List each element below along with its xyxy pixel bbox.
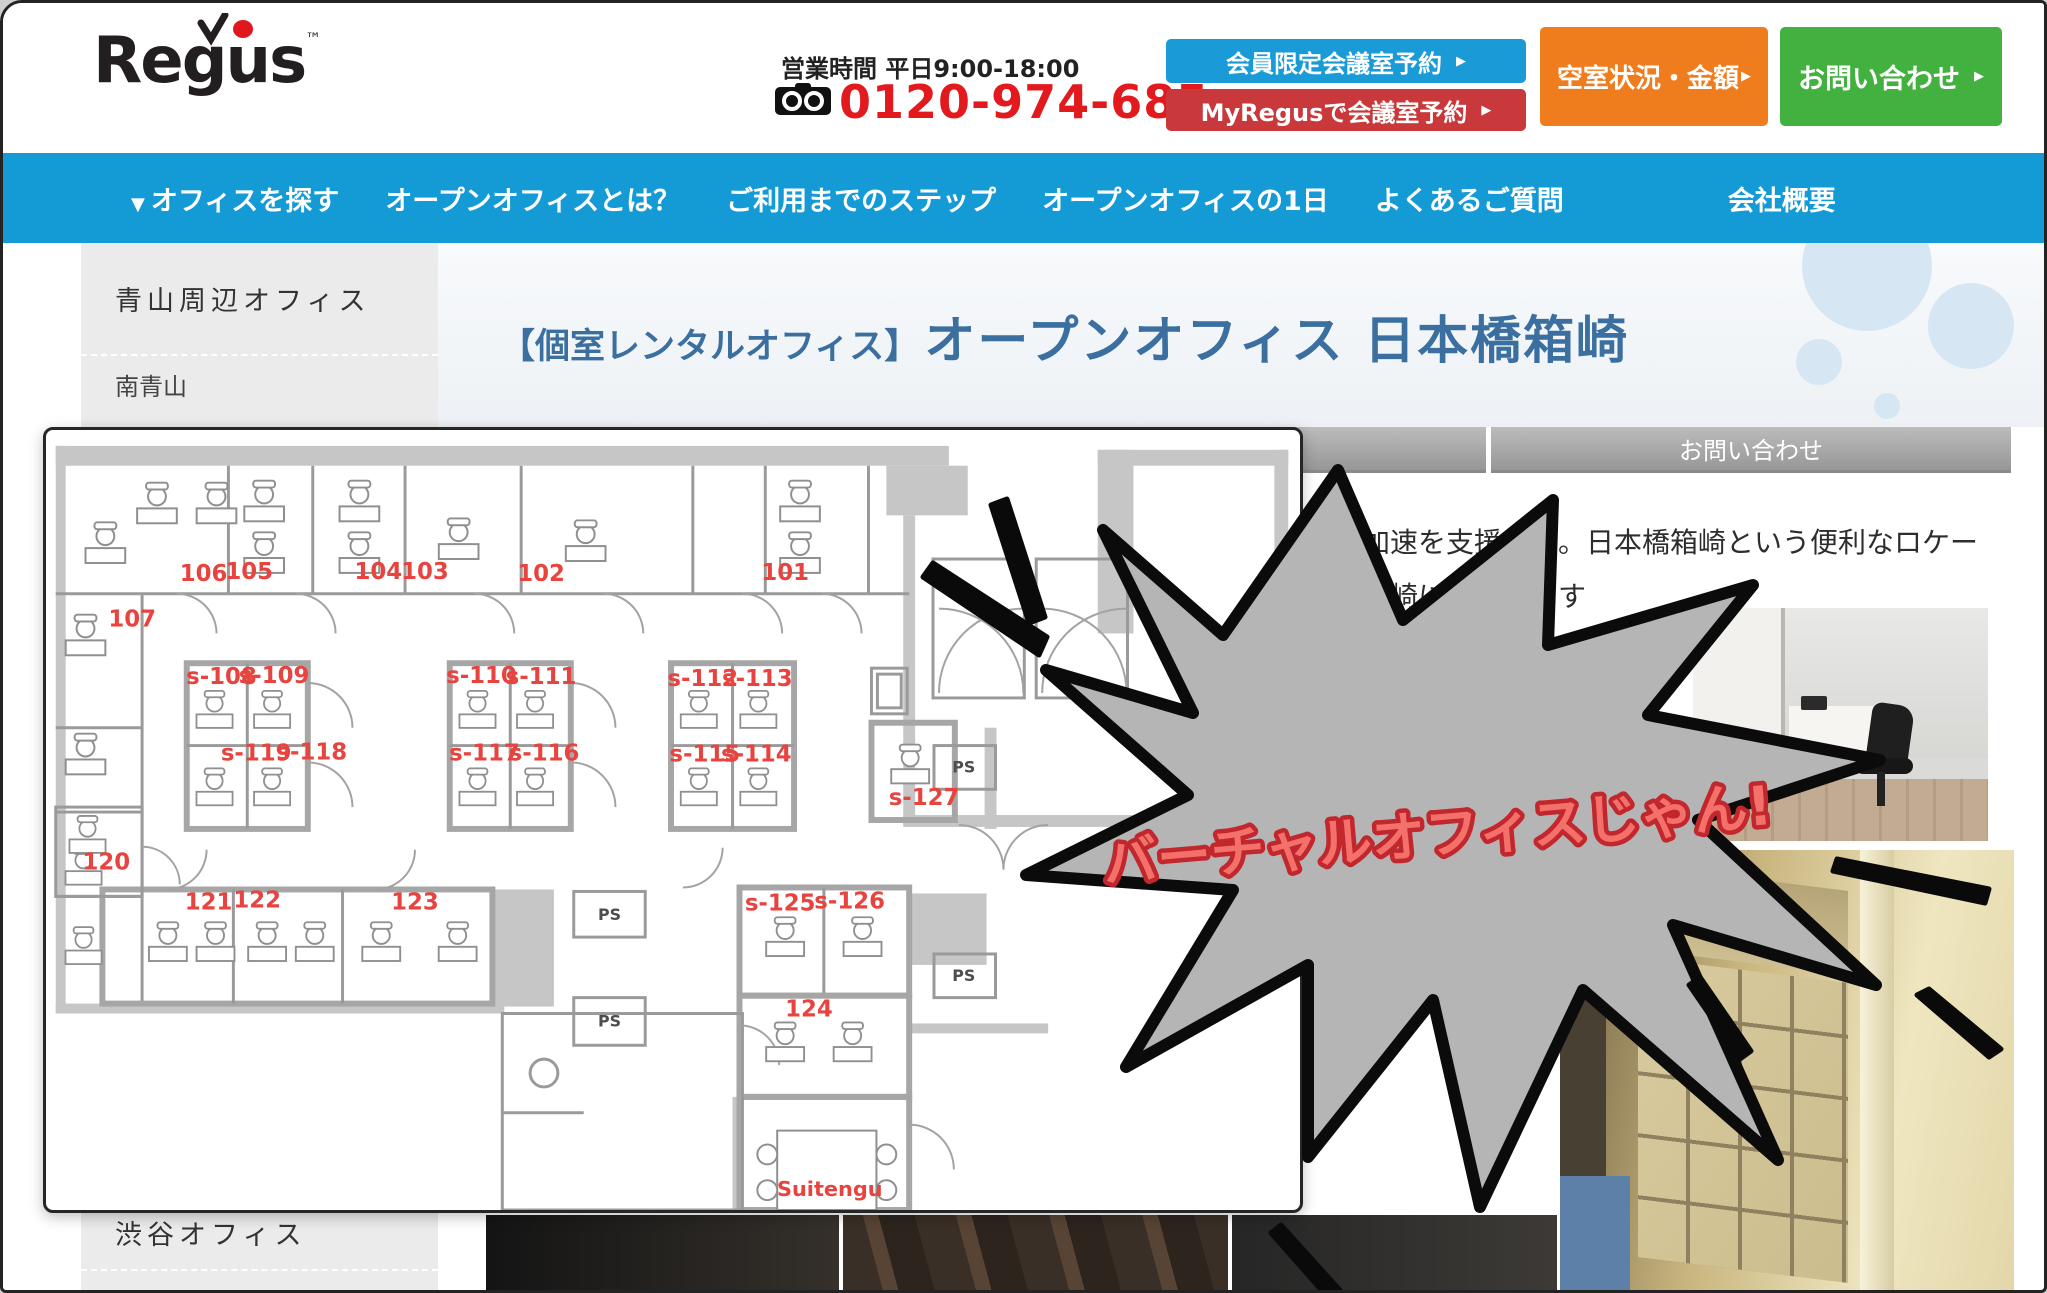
contact-label: お問い合わせ (1798, 57, 1960, 96)
room-label-105: 105 (225, 559, 273, 585)
body-text-line1: スの加速を支援する。日本橋箱崎という便利なロケー (1306, 521, 1978, 561)
furniture (65, 481, 929, 1210)
desk-phone (1801, 696, 1827, 710)
room-label-s-111: s-111 (506, 664, 577, 690)
arrow-icon: ▶ (1456, 54, 1466, 69)
arrow-icon: ▶ (1481, 103, 1491, 118)
page-title-prefix: 【個室レンタルオフィス】 (500, 327, 919, 367)
decor-blob (1796, 339, 1842, 385)
page: Regus™ 営業時間 平日9:00-18:00 0120-974-685 会員… (0, 0, 2047, 1293)
sidebar-item-minami-aoyama[interactable]: 南青山 (81, 356, 438, 412)
decor-blob (1874, 393, 1900, 419)
ps-label: PS (598, 1011, 621, 1030)
room-label-102: 102 (517, 561, 565, 587)
tab-contact[interactable]: お問い合わせ (1491, 427, 2011, 473)
myregus-meeting-room-label: MyRegusで会議室予約 (1201, 93, 1468, 128)
regus-logo[interactable]: Regus™ (93, 29, 323, 139)
suitengu-label: Suitengu (777, 1177, 883, 1201)
member-meeting-room-label: 会員限定会議室予約 (1226, 44, 1442, 79)
logo-tm: ™ (305, 29, 321, 48)
ps-label: PS (598, 905, 621, 924)
arrow-icon: ▶ (1741, 69, 1751, 84)
nav-item-about[interactable]: オープンオフィスとは？ (385, 179, 680, 218)
room-label-s-113: s-113 (722, 666, 793, 692)
content-header-band: 【個室レンタルオフィス】 オープンオフィス 日本橋箱崎 (438, 243, 2047, 427)
myregus-meeting-room-button[interactable]: MyRegusで会議室予約 ▶ (1166, 89, 1526, 131)
page-title: 【個室レンタルオフィス】 オープンオフィス 日本橋箱崎 (500, 299, 1629, 373)
mailbox-grid (1638, 957, 1848, 1283)
room-label-103: 103 (401, 559, 449, 585)
gallery-photo-dark-1 (486, 1215, 839, 1293)
room-label-s-114: s-114 (721, 741, 792, 767)
nav-item-one-day[interactable]: オープンオフィスの1日 (1042, 179, 1329, 218)
decor-blob (1928, 283, 2014, 369)
room-label-101: 101 (761, 560, 809, 586)
ps-label: PS (952, 757, 975, 776)
arrow-icon: ▶ (1974, 69, 1984, 84)
decor-blob (1802, 243, 1932, 331)
gallery-photo-dark-2 (843, 1215, 1228, 1293)
nav-item-find-office[interactable]: ▼オフィスを探す (131, 179, 339, 218)
room-label-121: 121 (185, 889, 233, 915)
room-label-122: 122 (233, 887, 281, 913)
office-interior-photo (1693, 608, 1988, 841)
room-label-106: 106 (180, 561, 228, 587)
nav-item-faq[interactable]: よくあるご質問 (1375, 179, 1564, 218)
vacancy-price-button[interactable]: 空室状況・金額▶ (1540, 27, 1768, 126)
room-label-s-126: s-126 (814, 888, 885, 914)
room-label-124: 124 (785, 996, 833, 1022)
regus-logo-mark-icon (195, 13, 265, 47)
header: Regus™ 営業時間 平日9:00-18:00 0120-974-685 会員… (3, 3, 2044, 153)
ps-label: PS (952, 966, 975, 985)
member-meeting-room-button[interactable]: 会員限定会議室予約 ▶ (1166, 39, 1526, 83)
room-label-107: 107 (108, 606, 156, 632)
room-label-s-118: s-118 (276, 739, 347, 765)
body-text-line2: 本橋箱崎にはあります (1306, 575, 1586, 615)
mailbox-photo (1560, 850, 2014, 1293)
floorplan-image: 106105104103102101107s-108s-109s-110s-11… (46, 430, 1300, 1210)
room-label-123: 123 (391, 889, 439, 915)
vacancy-price-label: 空室状況・金額 (1557, 58, 1739, 95)
room-label-s-109: s-109 (239, 663, 310, 689)
gallery-photo-dark-3 (1232, 1215, 1557, 1293)
phone-number: 0120-974-685 (839, 79, 1209, 125)
sidebar-header-aoyama[interactable]: 青山周辺オフィス (81, 243, 438, 356)
freedial-icon (775, 83, 833, 121)
room-label-s-116: s-116 (509, 740, 580, 766)
floorplan-panel: 106105104103102101107s-108s-109s-110s-11… (43, 427, 1303, 1213)
page-title-main: オープンオフィス 日本橋箱崎 (924, 312, 1629, 371)
room-label-104: 104 (354, 559, 402, 585)
caret-down-icon: ▼ (131, 194, 145, 215)
phone-link[interactable]: 0120-974-685 (775, 79, 1209, 125)
nav-item-steps[interactable]: ご利用までのステップ (726, 179, 996, 218)
nav-item-company[interactable]: 会社概要 (1728, 179, 1836, 218)
room-label-120: 120 (83, 850, 131, 876)
room-label-s-127: s-127 (889, 785, 960, 811)
contact-button[interactable]: お問い合わせ ▶ (1780, 27, 2002, 126)
main-nav: ▼オフィスを探す オープンオフィスとは？ ご利用までのステップ オープンオフィス… (3, 153, 2044, 243)
room-label-s-125: s-125 (745, 890, 816, 916)
